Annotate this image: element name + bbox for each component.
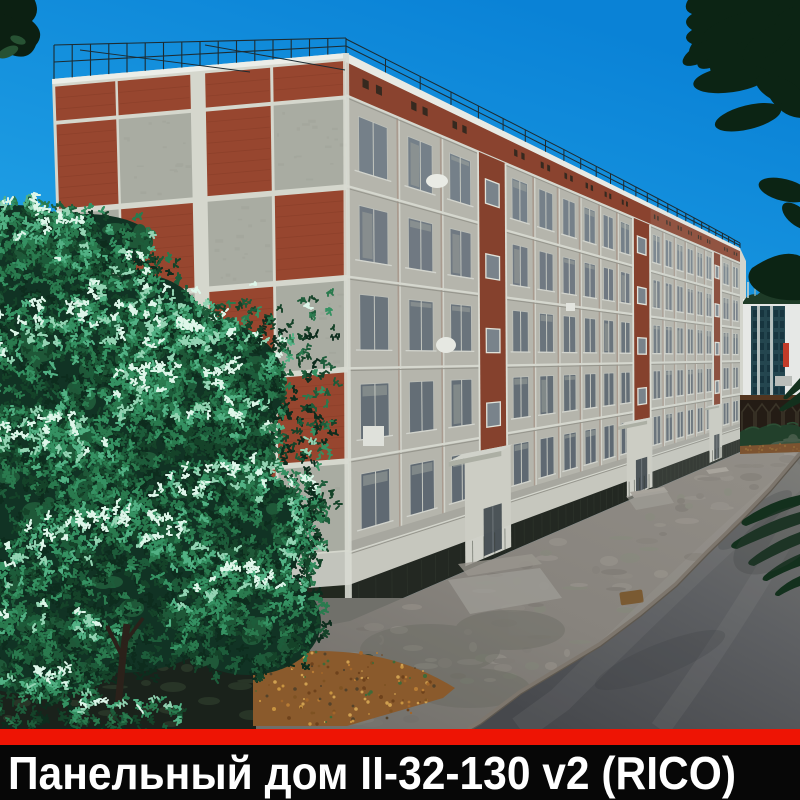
svg-text:Панельный дом II-32-130 v2 (RI: Панельный дом II-32-130 v2 (RICO) (8, 747, 736, 799)
